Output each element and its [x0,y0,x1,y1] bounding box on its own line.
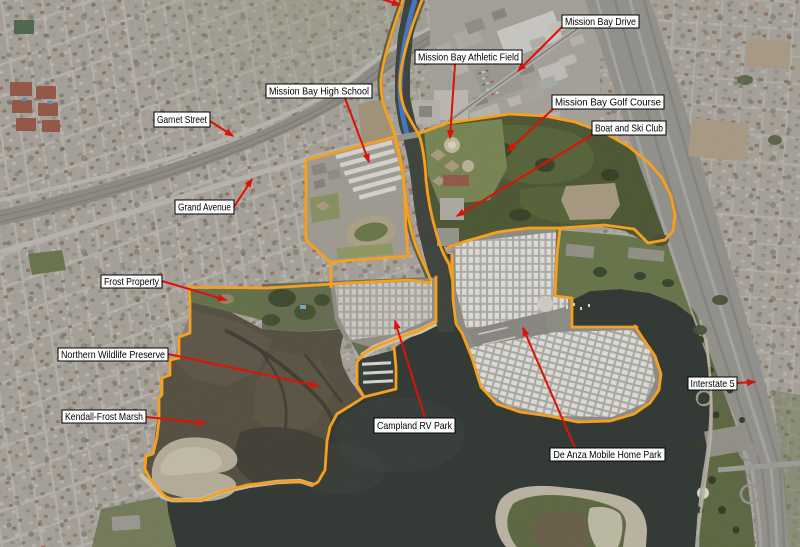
svg-text:Garnet Street: Garnet Street [157,114,207,126]
svg-text:Mission Bay Golf Course: Mission Bay Golf Course [555,97,661,109]
svg-text:Northern Wildlife Preserve: Northern Wildlife Preserve [61,349,165,361]
svg-text:Mission Bay High School: Mission Bay High School [269,86,369,98]
svg-text:Boat and Ski Club: Boat and Ski Club [595,123,663,135]
svg-text:Mission Bay Drive: Mission Bay Drive [565,16,636,28]
svg-text:Grand Avenue: Grand Avenue [178,202,231,214]
svg-text:Kendall-Frost Marsh: Kendall-Frost Marsh [65,411,143,423]
svg-text:Interstate 5: Interstate 5 [691,378,735,390]
svg-text:Frost Property: Frost Property [104,276,160,288]
svg-text:Campland RV Park: Campland RV Park [377,420,453,432]
svg-text:Mission Bay Athletic Field: Mission Bay Athletic Field [418,52,519,64]
svg-text:De Anza Mobile Home Park: De Anza Mobile Home Park [554,449,663,461]
